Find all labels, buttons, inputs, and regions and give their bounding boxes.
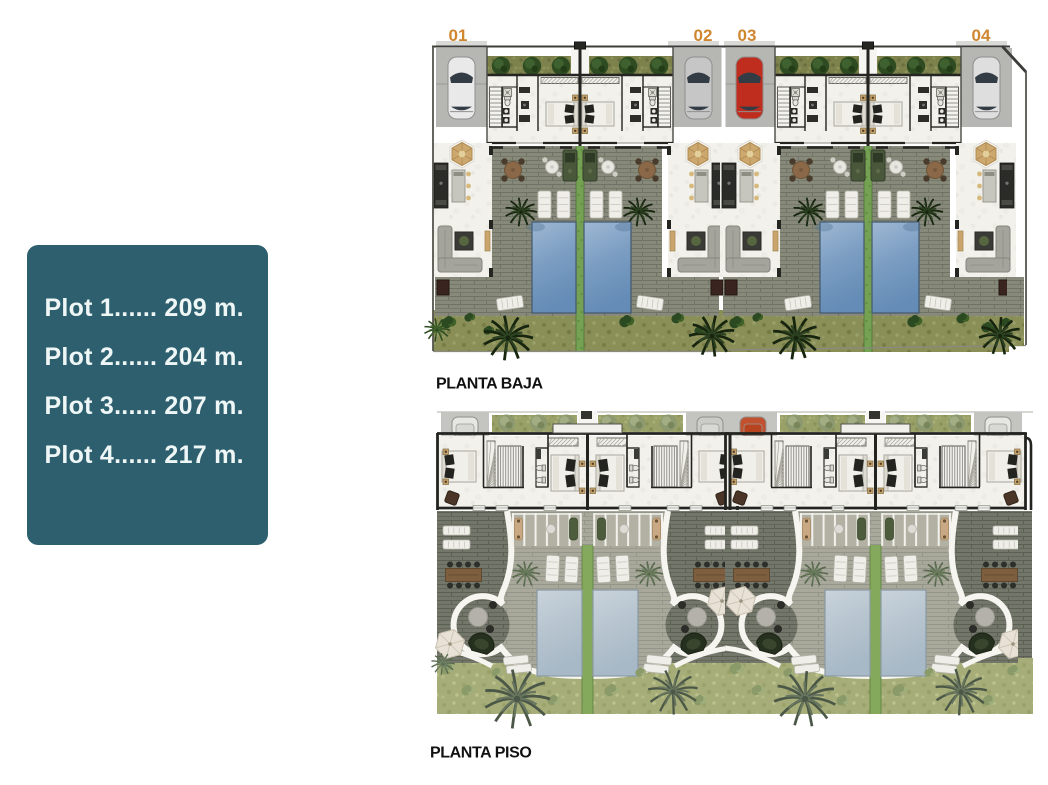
svg-text:Plot 4...... 217 m.: Plot 4...... 217 m. [45,441,244,469]
svg-text:PLANTA PISO: PLANTA PISO [430,745,531,762]
svg-text:Plot 2...... 204 m.: Plot 2...... 204 m. [45,343,244,371]
svg-text:Plot 3...... 207 m.: Plot 3...... 207 m. [45,392,244,420]
svg-text:PLANTA BAJA: PLANTA BAJA [436,376,544,393]
svg-text:Plot 1...... 209 m.: Plot 1...... 209 m. [45,294,244,322]
